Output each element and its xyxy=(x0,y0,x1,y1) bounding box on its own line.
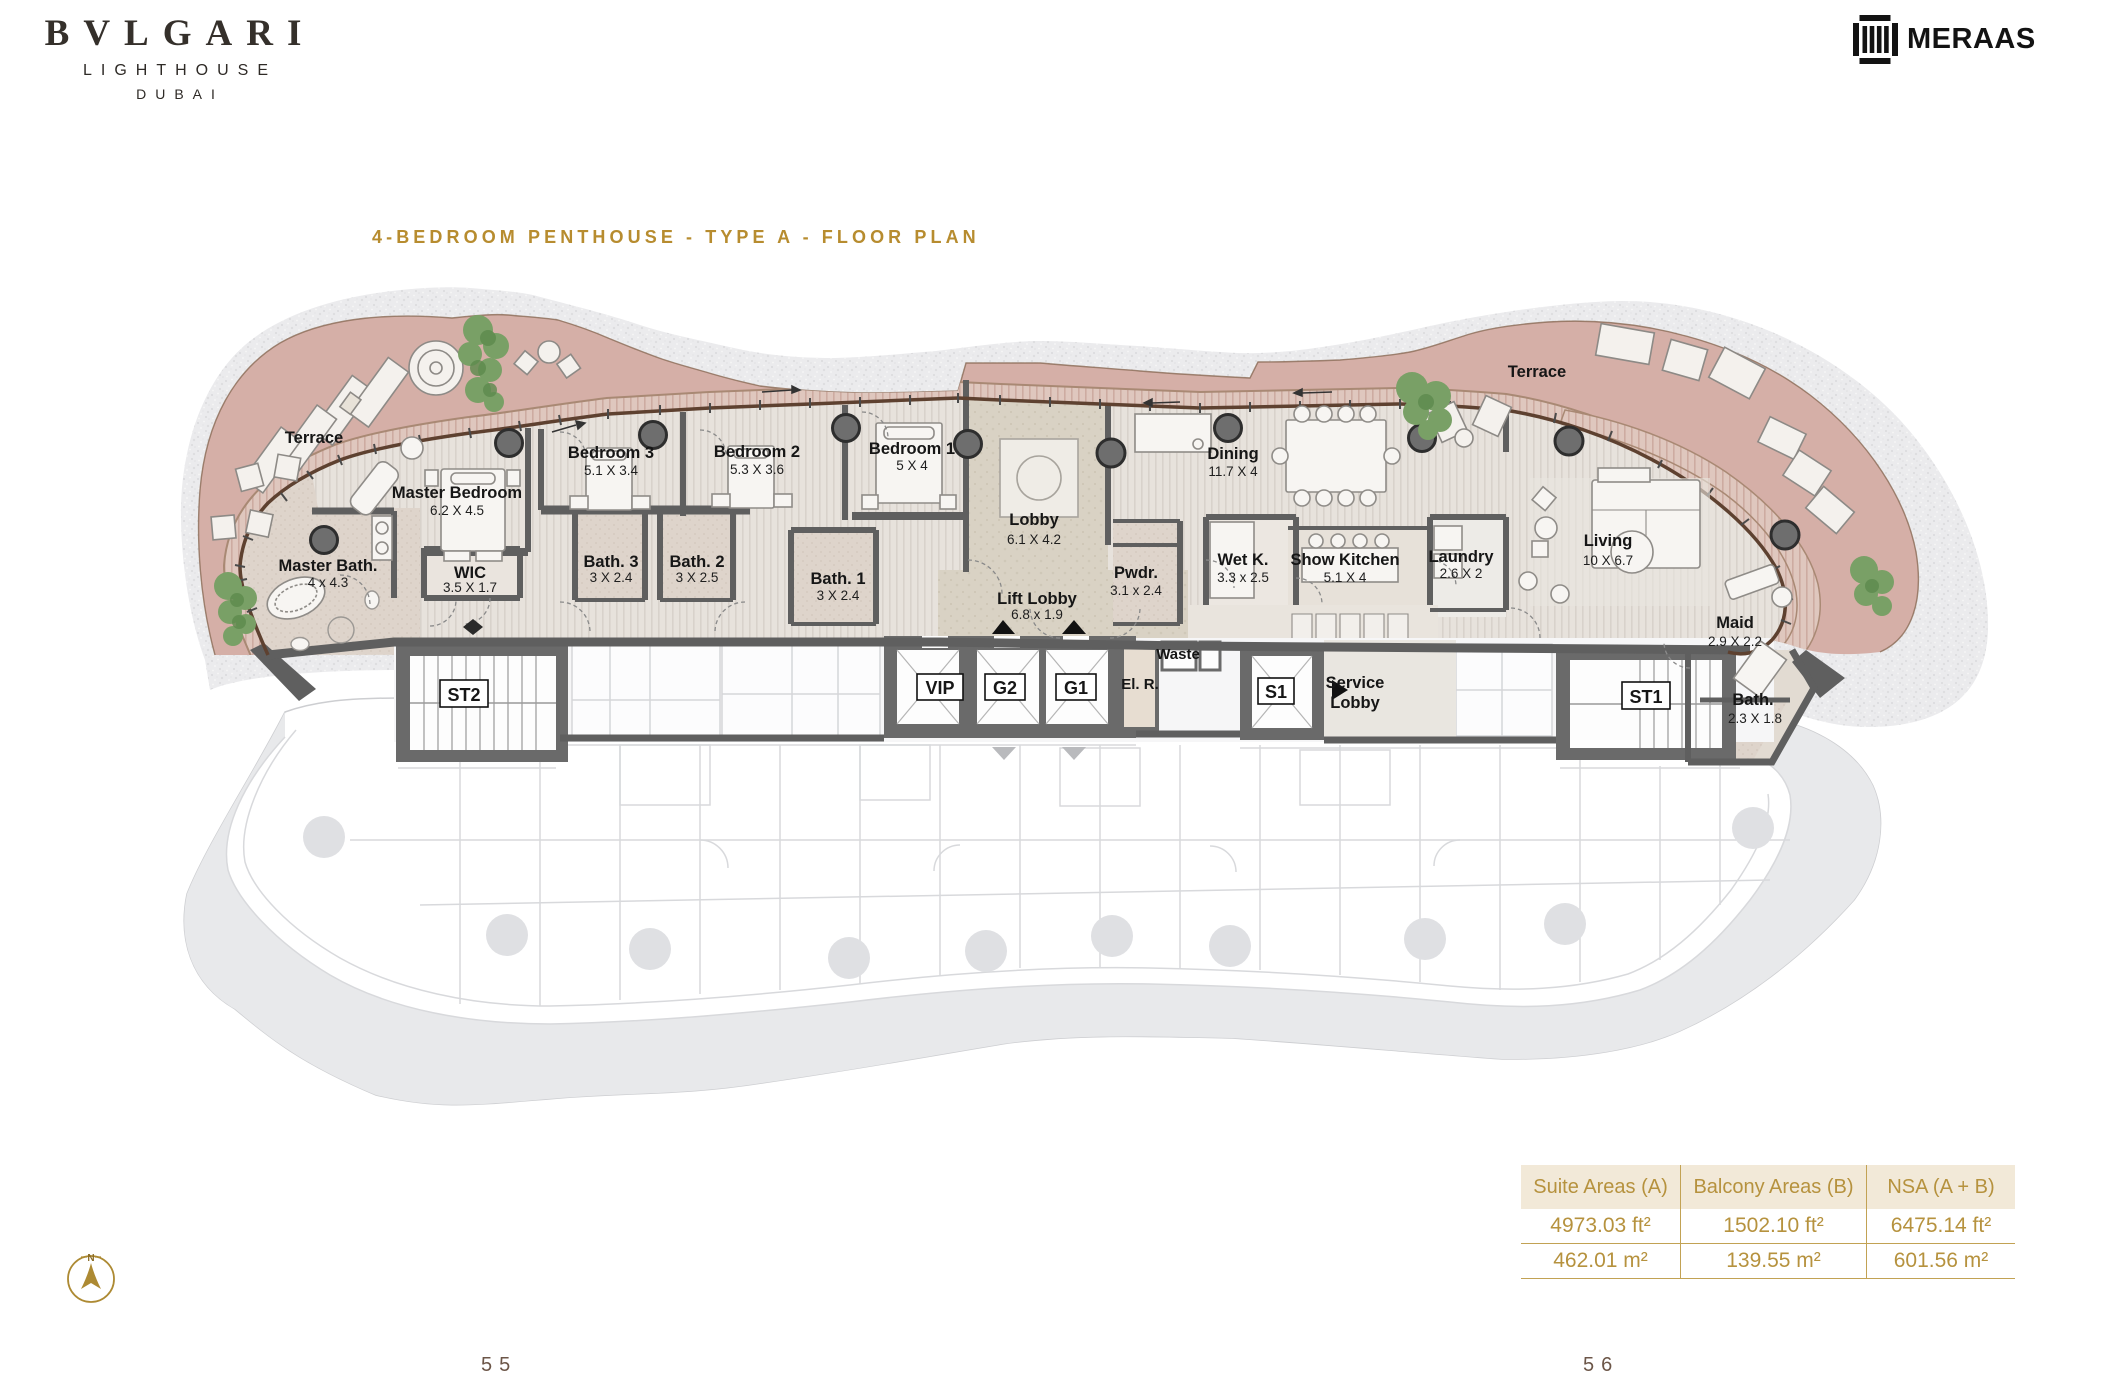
svg-text:5.1 X 3.4: 5.1 X 3.4 xyxy=(584,463,639,478)
svg-text:ST2: ST2 xyxy=(447,685,480,705)
svg-text:Master Bedroom: Master Bedroom xyxy=(392,484,522,502)
svg-text:VIP: VIP xyxy=(925,678,954,698)
svg-text:Show Kitchen: Show Kitchen xyxy=(1290,551,1399,569)
svg-text:4 x 4.3: 4 x 4.3 xyxy=(308,575,349,590)
svg-text:11.7 X 4: 11.7 X 4 xyxy=(1208,464,1258,479)
svg-text:3.5 X 1.7: 3.5 X 1.7 xyxy=(443,580,497,595)
svg-text:6.1 X 4.2: 6.1 X 4.2 xyxy=(1007,532,1061,547)
svg-text:Bath. 3: Bath. 3 xyxy=(583,553,638,571)
svg-text:6.2 X 4.5: 6.2 X 4.5 xyxy=(430,503,484,518)
svg-text:Laundry: Laundry xyxy=(1428,548,1494,566)
svg-text:G2: G2 xyxy=(993,678,1017,698)
svg-text:Master Bath.: Master Bath. xyxy=(278,557,377,575)
svg-text:Lobby: Lobby xyxy=(1330,694,1380,712)
svg-text:3 X 2.5: 3 X 2.5 xyxy=(676,570,719,585)
svg-text:El. R.: El. R. xyxy=(1121,676,1159,693)
svg-text:3.3 x 2.5: 3.3 x 2.5 xyxy=(1217,570,1269,585)
svg-text:Lobby: Lobby xyxy=(1009,511,1059,529)
svg-text:Bedroom 2: Bedroom 2 xyxy=(714,443,800,461)
svg-text:Terrace: Terrace xyxy=(285,429,343,447)
svg-text:5.3 X 3.6: 5.3 X 3.6 xyxy=(730,462,784,477)
svg-text:Bath. 1: Bath. 1 xyxy=(810,570,865,588)
svg-text:G1: G1 xyxy=(1064,678,1088,698)
svg-text:Maid: Maid xyxy=(1716,614,1754,632)
svg-text:Living: Living xyxy=(1584,532,1633,550)
svg-text:Bath.: Bath. xyxy=(1732,691,1773,709)
svg-text:N: N xyxy=(87,1253,94,1264)
svg-text:5.1 X 4: 5.1 X 4 xyxy=(1324,570,1367,585)
svg-text:2.3 X 1.8: 2.3 X 1.8 xyxy=(1728,711,1782,726)
svg-text:Terrace: Terrace xyxy=(1508,363,1566,381)
svg-text:Wet K.: Wet K. xyxy=(1217,551,1268,569)
svg-text:Dining: Dining xyxy=(1207,445,1258,463)
svg-text:Bedroom 1: Bedroom 1 xyxy=(869,440,955,458)
svg-text:2.9 X 2.2: 2.9 X 2.2 xyxy=(1708,634,1762,649)
svg-text:3 X 2.4: 3 X 2.4 xyxy=(817,588,860,603)
svg-text:2.6 X 2: 2.6 X 2 xyxy=(1440,566,1483,581)
svg-text:3 X 2.4: 3 X 2.4 xyxy=(590,570,633,585)
svg-text:10 X 6.7: 10 X 6.7 xyxy=(1583,553,1633,568)
svg-text:ST1: ST1 xyxy=(1629,687,1662,707)
svg-text:Lift Lobby: Lift Lobby xyxy=(997,590,1078,608)
svg-text:Waste: Waste xyxy=(1156,646,1200,663)
svg-text:3.1 x 2.4: 3.1 x 2.4 xyxy=(1110,583,1162,598)
svg-text:6.8 x 1.9: 6.8 x 1.9 xyxy=(1011,607,1063,622)
svg-text:5 X 4: 5 X 4 xyxy=(896,458,928,473)
svg-text:Pwdr.: Pwdr. xyxy=(1114,564,1158,582)
svg-text:Bath. 2: Bath. 2 xyxy=(669,553,724,571)
svg-text:S1: S1 xyxy=(1265,682,1287,702)
svg-text:Service: Service xyxy=(1326,674,1385,692)
svg-text:Bedroom 3: Bedroom 3 xyxy=(568,444,654,462)
